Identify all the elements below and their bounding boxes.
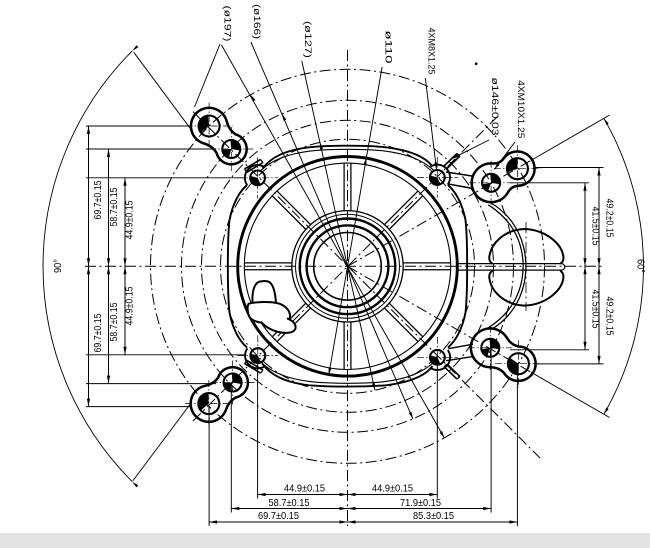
svg-text:49.2±0.15: 49.2±0.15 [604, 199, 615, 238]
svg-text:71.9±0.15: 71.9±0.15 [400, 498, 441, 509]
svg-text:85.3±0.15: 85.3±0.15 [413, 511, 454, 522]
svg-text:60°: 60° [635, 259, 646, 273]
svg-text:69.7±0.15: 69.7±0.15 [258, 511, 299, 522]
svg-text:(ø197): (ø197) [223, 6, 233, 42]
svg-text:90°: 90° [53, 259, 64, 273]
svg-text:58.7±0.15: 58.7±0.15 [269, 498, 310, 509]
svg-text:44.9±0.15: 44.9±0.15 [284, 484, 325, 495]
svg-text:44.9±0.15: 44.9±0.15 [372, 484, 413, 495]
svg-text:(ø166): (ø166) [252, 4, 262, 39]
svg-text:(ø127): (ø127) [303, 21, 313, 58]
svg-text:49.2±0.15: 49.2±0.15 [604, 297, 615, 336]
svg-text:58.7±0.15: 58.7±0.15 [109, 187, 120, 226]
svg-text:69.7±0.15: 69.7±0.15 [93, 180, 104, 219]
svg-text:69.7±0.15: 69.7±0.15 [93, 313, 104, 352]
svg-text:ø110: ø110 [383, 31, 393, 64]
svg-text:ø146±0.03: ø146±0.03 [490, 78, 500, 136]
svg-text:4XM10X1.25: 4XM10X1.25 [516, 80, 526, 138]
svg-text:44.9±0.15: 44.9±0.15 [125, 286, 136, 325]
svg-text:4XM8X1.25: 4XM8X1.25 [427, 28, 437, 75]
svg-text:58.7±0.15: 58.7±0.15 [109, 302, 120, 341]
svg-text:44.9±0.15: 44.9±0.15 [125, 200, 136, 239]
